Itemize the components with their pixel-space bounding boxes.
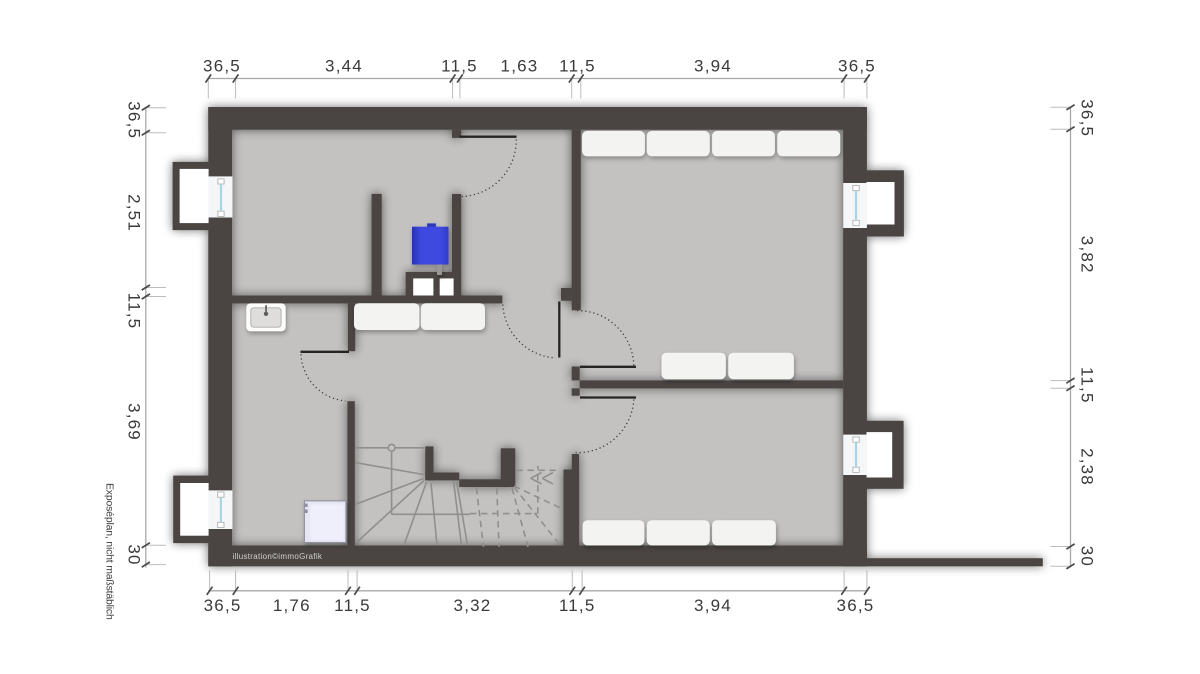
svg-text:1,76: 1,76 — [273, 596, 311, 615]
svg-text:3,94: 3,94 — [694, 596, 732, 615]
svg-text:36,5: 36,5 — [125, 101, 144, 139]
svg-text:36,5: 36,5 — [837, 596, 875, 615]
svg-text:Exposéplan, nicht maßstäblich: Exposéplan, nicht maßstäblich — [104, 483, 116, 620]
svg-text:3,69: 3,69 — [125, 403, 144, 441]
svg-text:11,5: 11,5 — [559, 596, 596, 615]
svg-text:11,5: 11,5 — [1078, 367, 1097, 404]
svg-text:36,5: 36,5 — [1078, 99, 1097, 137]
svg-text:36,5: 36,5 — [204, 596, 242, 615]
svg-text:30: 30 — [125, 544, 144, 565]
svg-text:illustration©immoGrafik: illustration©immoGrafik — [233, 552, 323, 561]
svg-text:1,63: 1,63 — [501, 57, 539, 76]
svg-text:2,51: 2,51 — [125, 194, 144, 232]
svg-text:2,38: 2,38 — [1078, 448, 1097, 486]
svg-text:3,82: 3,82 — [1078, 236, 1097, 274]
svg-text:3,94: 3,94 — [694, 57, 732, 76]
svg-text:11,5: 11,5 — [125, 293, 144, 330]
svg-text:30: 30 — [1078, 546, 1097, 567]
svg-text:3,44: 3,44 — [325, 57, 363, 76]
svg-text:3,32: 3,32 — [454, 596, 492, 615]
svg-text:11,5: 11,5 — [334, 596, 371, 615]
svg-text:36,5: 36,5 — [838, 57, 876, 76]
svg-text:11,5: 11,5 — [441, 57, 478, 76]
svg-text:11,5: 11,5 — [559, 57, 596, 76]
svg-text:36,5: 36,5 — [203, 57, 241, 76]
